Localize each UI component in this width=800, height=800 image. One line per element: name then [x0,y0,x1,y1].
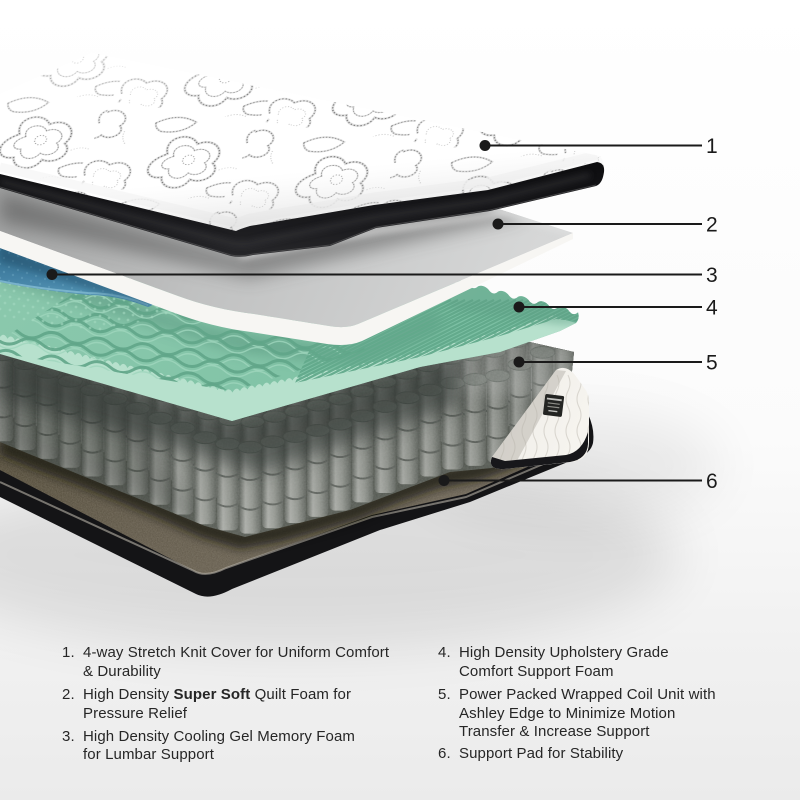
svg-text:2: 2 [706,214,718,237]
svg-text:6: 6 [706,470,718,493]
svg-text:5: 5 [706,352,718,375]
svg-text:3: 3 [706,264,718,287]
svg-text:4: 4 [706,297,718,320]
svg-text:1: 1 [706,135,718,158]
